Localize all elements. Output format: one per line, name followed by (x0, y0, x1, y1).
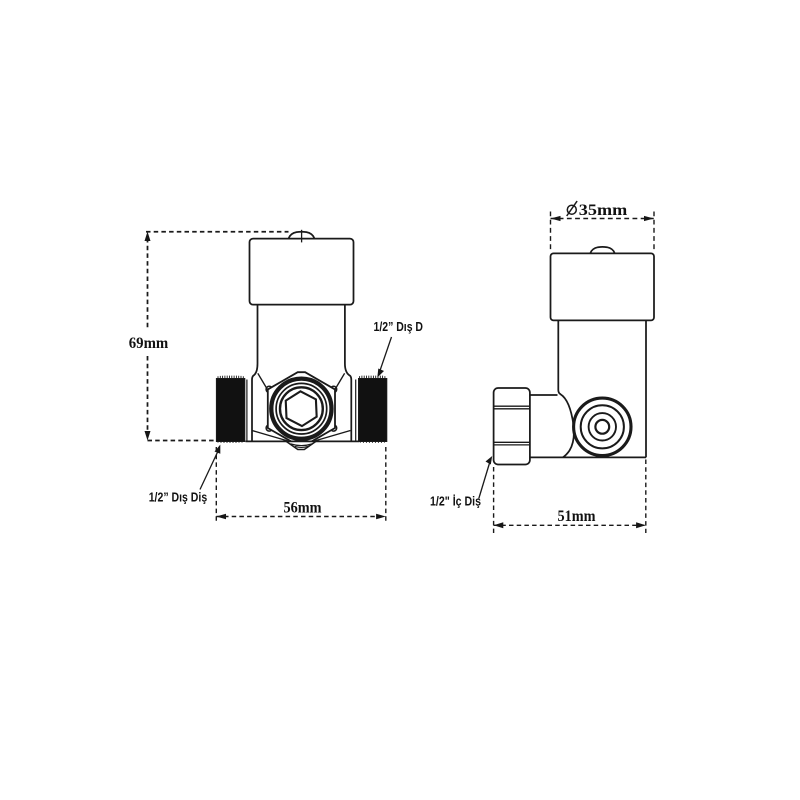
svg-text:1/2” Dış Diş: 1/2” Dış Diş (149, 490, 208, 505)
svg-text:1/2” Dış D: 1/2” Dış D (374, 319, 424, 334)
svg-text:69mm: 69mm (129, 335, 169, 352)
svg-text:51mm: 51mm (558, 508, 597, 525)
svg-text:1/2" İç Diş: 1/2" İç Diş (430, 494, 481, 509)
svg-text:56mm: 56mm (284, 500, 323, 517)
svg-text:35mm: 35mm (579, 202, 628, 219)
